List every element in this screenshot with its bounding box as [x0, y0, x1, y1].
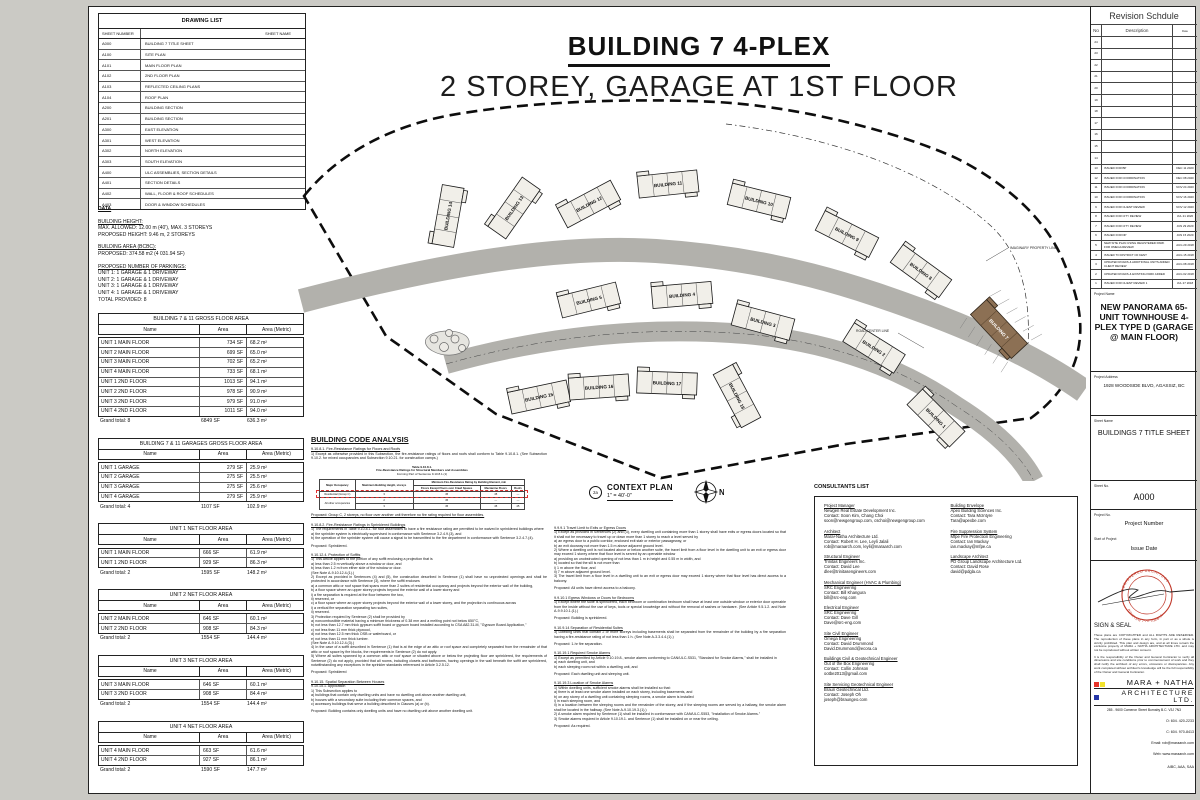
consultant-email: david@pdgla.ca [951, 569, 1078, 574]
sheet-name-cell: WEST ELEVATION [141, 138, 305, 143]
rev-no: 3 [1091, 260, 1102, 269]
rev-no: 17 [1091, 118, 1102, 129]
cell-metric: 60.1 m² [247, 616, 303, 622]
north-label: N [719, 488, 724, 497]
revision-row: 5NEW SITE PLAN USING REGISTERED PARK FOR… [1091, 241, 1197, 251]
proposed-statement: Proposed: 1-hr fire separation. [554, 642, 786, 646]
building-footprint: BUILDING 15 [507, 376, 572, 418]
col-name: Name [99, 667, 200, 676]
sheet-no-label: Sheet No. [1094, 484, 1194, 488]
sheet-name-cell: NORTH ELEVATION [141, 148, 305, 153]
rev-no: 16 [1091, 130, 1102, 141]
consultant-email: ootbe2013@gmail.com [824, 671, 951, 676]
rev-date [1173, 60, 1197, 71]
drawing-list-row: A400ULC ASSEMBLIES, SECTION DETAILS [99, 167, 305, 178]
rev-no: 19 [1091, 95, 1102, 106]
cell-metric: 84.4 m² [247, 691, 303, 697]
firm-phone-cell: C: 604. 970-8413 [1094, 730, 1194, 734]
rev-date: DEC 08 2020 [1173, 174, 1197, 183]
issue-date-section: Start of Project Issue Date [1091, 534, 1197, 561]
revision-row-empty: 15 [1091, 141, 1197, 153]
revision-row-empty: 18 [1091, 107, 1197, 119]
building-footprint: BUILDING 5 [556, 278, 621, 322]
rev-date [1173, 49, 1197, 60]
rev-date: NOV 16 2020 [1173, 193, 1197, 202]
area-table-title: UNIT 4 NET FLOOR AREA [99, 722, 303, 733]
revision-row: 8ISSUED FOR CITY REVIEWJUL 21 2020 [1091, 213, 1197, 223]
logo-red-square-icon [1094, 682, 1099, 687]
rev-description: ISSUED FOR COORDINATION [1102, 174, 1173, 183]
col-name: Name [99, 535, 200, 544]
consultant-email: joseph@braungeo.com [824, 697, 951, 702]
total-label: Grand total: 8 [98, 417, 198, 426]
copyright-paragraph: These plans are COPYRIGHTED and ALL RIGH… [1091, 634, 1197, 653]
project-number: Project Number [1094, 519, 1194, 531]
rev-date [1173, 95, 1197, 106]
data-line: UNIT 1: 1 GARAGE & 1 DRIVEWAY [98, 270, 304, 277]
consultant-entry: Landscape ArchitectPD Group Landscape Ar… [951, 554, 1078, 574]
sheet-name-cell: REFLECTED CEILING PLANS [141, 84, 305, 89]
rev-no: 11 [1091, 184, 1102, 193]
table-row: UNIT 2 GARAGE275 SF25.5 m² [99, 473, 303, 483]
rev-no: 2 [1091, 270, 1102, 279]
area-table: UNIT 3 NET FLOOR AREANameAreaArea (Metri… [98, 655, 304, 709]
consultant-entry: Structural EngineerTrinitas Engineers In… [824, 554, 951, 574]
logo-blue-square-icon [1094, 695, 1099, 700]
north-arrow-icon: N [694, 479, 724, 505]
area-tables: BUILDING 7 & 11 GROSS FLOOR AREANameArea… [98, 313, 304, 787]
cell-name: UNIT 3 MAIN FLOOR [99, 680, 200, 689]
proposed-statement: Proposed: Sprinklered. [311, 544, 547, 548]
building-footprint: BUILDING 16 [568, 370, 630, 404]
sheet-name-cell: WALL, FLOOR & ROOF SCHEDULES [141, 191, 305, 196]
rev-no: 1 [1091, 280, 1102, 289]
cell-area: 1011 SF [200, 407, 247, 416]
rev-description [1102, 141, 1173, 152]
consultant-entry: Buildings Civil & Geotechnical EngineerO… [824, 656, 951, 676]
cell-metric: 25.5 m² [247, 474, 303, 480]
consultant-entry: Site Servicing Geotechnical EngineerBrau… [824, 682, 951, 702]
col-name: Name [99, 325, 200, 334]
area-table-head: BUILDING 7 & 11 GROSS FLOOR AREANameArea… [98, 313, 304, 335]
area-table: UNIT 4 NET FLOOR AREANameAreaArea (Metri… [98, 721, 304, 775]
revision-row: 12ISSUED FOR COORDINATIONDEC 08 2020 [1091, 174, 1197, 184]
sheet-number-cell: A200 [99, 103, 141, 113]
context-plan-text: CONTEXT PLAN 1" = 40'-0" [607, 483, 673, 501]
architect-seal-area: REGISTERED ARCHITECT BRITISH COLUMBIA [1091, 561, 1197, 619]
logo-yellow-square-icon [1100, 682, 1105, 687]
cell-area: 275 SF [200, 473, 247, 482]
data-group-heading: BUILDING AREA (BCBC): [98, 244, 304, 251]
building-footprint: BUILDING 13 [485, 175, 544, 241]
rev-no: 10 [1091, 193, 1102, 202]
rev-no: 14 [1091, 153, 1102, 164]
total-area: 1107 SF [198, 502, 244, 511]
revision-row: 10ISSUED FOR COORDINATIONNOV 16 2020 [1091, 193, 1197, 203]
drawing-list-row: A000BUILDING 7 TITLE SHEET [99, 39, 305, 50]
sheet-number-cell: A301 [99, 135, 141, 145]
column-sheet-number: SHEET NUMBER [99, 29, 141, 38]
col-area: Area [200, 450, 247, 459]
area-table-columns: NameAreaArea (Metric) [99, 450, 303, 459]
cell-name: UNIT 3 MAIN FLOOR [99, 358, 200, 367]
cell-area: 979 SF [200, 397, 247, 406]
cell-name: UNIT 4 MAIN FLOOR [99, 368, 200, 377]
area-table-columns: NameAreaArea (Metric) [99, 733, 303, 742]
cell-name: UNIT 2 2ND FLOOR [99, 624, 200, 633]
rev-no: 15 [1091, 141, 1102, 152]
rev-col-no: No [1091, 25, 1102, 36]
data-line: UNIT 4: 1 GARAGE & 1 DRIVEWAY [98, 290, 304, 297]
rev-date: DEC 11 2020 [1173, 165, 1197, 174]
area-table-head: UNIT 1 NET FLOOR AREANameAreaArea (Metri… [98, 523, 304, 545]
revision-rows: 242322212019181716151413ISSUED FOR BPDEC… [1091, 37, 1197, 289]
firm-name-line1: MARA + NATHA [1106, 678, 1194, 687]
rev-description: ISSUED TO DISTRICT OF KENT [1102, 251, 1173, 260]
code-text-line: b) the operation of the sprinkler system… [311, 536, 547, 540]
project-address: 1928 WOODSIDE BLVD, AGASSIZ, BC [1094, 381, 1194, 412]
rev-no: 5 [1091, 241, 1102, 250]
data-line: PROPOSED: 374.58 m2 (4 031.94 SF) [98, 251, 304, 258]
fire-rating-table: Major OccupancyMaximum Building Height, … [319, 479, 525, 510]
cell-area: 663 SF [200, 746, 247, 755]
cell-area: 702 SF [200, 358, 247, 367]
sheet-number-section: Sheet No. A000 [1091, 481, 1197, 510]
col-area-metric: Area (Metric) [247, 537, 303, 543]
table-row: UNIT 2 MAIN FLOOR699 SF65.0 m² [99, 348, 303, 358]
rev-date: NOV 24 2020 [1173, 184, 1197, 193]
rev-description: ISSUED FOR COORDINATION [1102, 193, 1173, 202]
area-table-title: UNIT 3 NET FLOOR AREA [99, 656, 303, 667]
cell-name: UNIT 4 MAIN FLOOR [99, 746, 200, 755]
drawing-list-row: A303SOUTH ELEVATION [99, 157, 305, 168]
total-area: 1590 SF [198, 766, 244, 775]
sheet-name-cell: SITE PLAN [141, 52, 305, 57]
proposed-statement: Proposed: Sprinklered [311, 670, 547, 674]
cell-name: UNIT 4 2ND FLOOR [99, 756, 200, 765]
sheet-name-cell: BUILDING SECTION [141, 116, 305, 121]
rev-no: 9 [1091, 203, 1102, 212]
cell-name: UNIT 3 GARAGE [99, 483, 200, 492]
sheet-number-cell: A101 [99, 60, 141, 70]
table-row: UNIT 1 2ND FLOOR929 SF86.3 m² [99, 558, 303, 567]
title-block-panel: Revision Schdule No Description Date 242… [1090, 7, 1197, 793]
cell-metric: 25.9 m² [247, 465, 303, 471]
code-text-line: 3) Dwelling units that contain 2 or more… [554, 630, 786, 639]
drawing-list-row: A200BUILDING SECTION [99, 103, 305, 114]
cell-name: UNIT 2 MAIN FLOOR [99, 348, 200, 357]
area-table-head: UNIT 2 NET FLOOR AREANameAreaArea (Metri… [98, 589, 304, 611]
cell-area: 646 SF [200, 614, 247, 623]
fire-table-caption3: Forming Part of Sentence 9.10.8.1.(1) [319, 473, 525, 477]
sheet-name-section: Sheet Name BUILDINGS 7 TITLE SHEET [1091, 416, 1197, 481]
rev-description [1102, 107, 1173, 118]
data-line: UNIT 3: 1 GARAGE & 1 DRIVEWAY [98, 283, 304, 290]
context-plan-label: CONTEXT PLAN [607, 483, 673, 492]
consultant-email: bill@src-eng.com [824, 595, 951, 600]
table-row: UNIT 4 MAIN FLOOR663 SF61.6 m² [99, 746, 303, 756]
col-area-metric: Area (Metric) [247, 603, 303, 609]
revision-row: 2UPDATED ROADS & EXISTING PARK ADDEDAUG … [1091, 270, 1197, 280]
revision-row: 13ISSUED FOR BPDEC 11 2020 [1091, 165, 1197, 175]
cell-metric: 60.1 m² [247, 682, 303, 688]
cell-name: UNIT 2 MAIN FLOOR [99, 614, 200, 623]
cell-metric: 90.9 m² [247, 389, 303, 395]
table-row: UNIT 3 2ND FLOOR908 SF84.4 m² [99, 690, 303, 699]
revision-row: 3UPDATED ROADS & ADDITIONAL UNITS ADDED … [1091, 260, 1197, 270]
cell-name: UNIT 3 2ND FLOOR [99, 397, 200, 406]
revision-row-empty: 19 [1091, 95, 1197, 107]
code-text-line: ii) in a location between the sleeping r… [554, 703, 786, 712]
col-area-metric: Area (Metric) [247, 327, 303, 333]
project-name-label: Project Name [1094, 292, 1194, 296]
revision-row-empty: 16 [1091, 130, 1197, 142]
area-table: BUILDING 7 & 11 GARAGES GROSS FLOOR AREA… [98, 438, 304, 511]
rev-date [1173, 107, 1197, 118]
building-footprint: BUILDING 4 [651, 277, 713, 312]
table-row: UNIT 3 MAIN FLOOR702 SF65.2 m² [99, 358, 303, 368]
total-area: 1554 SF [198, 634, 244, 643]
cell-area: 699 SF [200, 348, 247, 357]
area-table-title: UNIT 2 NET FLOOR AREA [99, 590, 303, 601]
consultant-email: soon@newgengroup.com, cschoi@newgengroup… [824, 518, 951, 523]
building-footprint: BUILDING 18 [710, 362, 765, 429]
sheet-name-cell: EAST ELEVATION [141, 127, 305, 132]
building-code-analysis-col2: 9.9.9.1 Travel Limit to Exits or Egress … [554, 521, 786, 728]
rev-description: UPDATED ROADS & EXISTING PARK ADDED [1102, 270, 1173, 279]
rev-description: ISSUED FOR DP [1102, 232, 1173, 241]
code-text-line: 2) A smoke alarm required by Sentence (1… [554, 712, 786, 716]
sheet-number-cell: A402 [99, 189, 141, 199]
rev-description: ISSUED FOR CITY REVIEW [1102, 222, 1173, 231]
firm-associations: AIBC, AAA, SAA [1094, 765, 1194, 769]
firm-web: Web: www.maraarch.com [1094, 752, 1194, 756]
cell-name: UNIT 2 GARAGE [99, 473, 200, 482]
cell-name: UNIT 2 2ND FLOOR [99, 387, 200, 396]
building-footprint: BUILDING 17 [636, 367, 697, 399]
cell-area: 646 SF [200, 680, 247, 689]
rev-no: 21 [1091, 72, 1102, 83]
cell-name: UNIT 3 2ND FLOOR [99, 690, 200, 699]
building-footprint: BUILDING 11 [637, 166, 700, 202]
revision-row: 4ISSUED TO DISTRICT OF KENTAUG 15 2018 [1091, 251, 1197, 261]
total-label: Grand total: 2 [98, 766, 198, 775]
property-line-callout: IMAGINARY PROPERTY LINE [986, 246, 1058, 261]
cell-area: 908 SF [200, 624, 247, 633]
table-row: UNIT 3 2ND FLOOR979 SF91.0 m² [99, 397, 303, 407]
data-group-heading: BUILDING HEIGHT: [98, 219, 304, 226]
total-label: Grand total: 2 [98, 700, 198, 709]
rev-date [1173, 118, 1197, 129]
cell-area: 927 SF [200, 756, 247, 765]
sheet-name-cell: ROOF PLAN [141, 95, 305, 100]
rev-no: 4 [1091, 251, 1102, 260]
sheet-name-cell: 2ND FLOOR PLAN [141, 73, 305, 78]
cell-name: UNIT 1 2ND FLOOR [99, 558, 200, 567]
table-row: UNIT 2 2ND FLOOR978 SF90.9 m² [99, 387, 303, 397]
sheet-name-cell: SOUTH ELEVATION [141, 159, 305, 164]
revision-row: 1ISSUED FOR CLIENT REVIEW 1JUL 27 2018 [1091, 280, 1197, 290]
fire-rating-table-wrap: Table 9.10.8.1. Fire-Resistance Ratings … [319, 466, 525, 511]
building-label: BUILDING 17 [653, 380, 682, 386]
table-row: UNIT 4 MAIN FLOOR733 SF68.1 m² [99, 368, 303, 378]
rev-description [1102, 83, 1173, 94]
revision-row: 11ISSUED FOR COORDINATIONNOV 24 2020 [1091, 184, 1197, 194]
code-analysis-title: BUILDING CODE ANALYSIS [311, 438, 547, 442]
consultant-entry: Fire Suppression SystemMfpe Fire Protect… [951, 529, 1078, 549]
col-name: Name [99, 601, 200, 610]
table-row: UNIT 4 GARAGE279 SF25.9 m² [99, 493, 303, 502]
rev-description [1102, 95, 1173, 106]
area-table: UNIT 1 NET FLOOR AREANameAreaArea (Metri… [98, 523, 304, 577]
context-plan-caption: 2a CONTEXT PLAN 1" = 40'-0" N [589, 479, 779, 505]
rev-date: AUG 02 2018 [1173, 270, 1197, 279]
firm-email: Email: rob@maraarch.com [1094, 741, 1194, 745]
rev-date [1173, 37, 1197, 48]
consultants-left-column: Project ManagerNewgen Real Estate Develo… [824, 503, 951, 765]
building-footprint: BUILDING 10 [726, 179, 791, 223]
sheet-number-cell: A302 [99, 146, 141, 156]
rev-description: ISSUED FOR BP [1102, 165, 1173, 174]
drawing-list-row: A301WEST ELEVATION [99, 135, 305, 146]
revision-row-empty: 21 [1091, 72, 1197, 84]
cell-name: UNIT 1 MAIN FLOOR [99, 338, 200, 347]
col-area: Area [200, 535, 247, 544]
consultant-email: rob@maraarch.com, leyli@maraarch.com [824, 544, 951, 549]
table-row: UNIT 2 MAIN FLOOR646 SF60.1 m² [99, 614, 303, 624]
total-metric: 102.9 m² [244, 504, 304, 510]
data-section-body: BUILDING HEIGHT:MAX. ALLOWED: 12.00 m (4… [98, 219, 304, 304]
cell-area: 908 SF [200, 690, 247, 699]
proposed-statement: Proposed: Building contains only dwellin… [311, 709, 547, 713]
cell-metric: 25.9 m² [247, 494, 303, 500]
cell-metric: 61.9 m² [247, 550, 303, 556]
code-text-line: 5) Where all suites spanned by a common … [311, 654, 547, 667]
imaginary-property-line-label: IMAGINARY PROPERTY LINE [1010, 246, 1058, 250]
col-name: Name [99, 450, 200, 459]
area-table-columns: NameAreaArea (Metric) [99, 535, 303, 544]
responsibility-paragraph: It is the responsibility of the Owner an… [1091, 656, 1197, 675]
table-total-row: Grand total: 21590 SF147.7 m² [98, 766, 304, 775]
sheet-name-label: Sheet Name [1094, 419, 1194, 423]
col-area: Area [200, 733, 247, 742]
revision-schedule-header: No Description Date [1091, 24, 1197, 37]
rev-description [1102, 49, 1173, 60]
cell-area: 279 SF [200, 463, 247, 472]
cell-area: 734 SF [200, 338, 247, 347]
rev-description: ISSUED FOR CITY REVIEW [1102, 213, 1173, 222]
table-row: UNIT 3 MAIN FLOOR646 SF60.1 m² [99, 680, 303, 690]
code-text-line: 3) The travel limit from a floor level i… [554, 574, 786, 583]
data-line: PROPOSED HEIGHT: 9.46 m, 2 STOREYS [98, 232, 304, 239]
cell-name: UNIT 1 GARAGE [99, 463, 200, 472]
building-footprint: BUILDING 9 [813, 207, 880, 261]
building-code-analysis-col1: BUILDING CODE ANALYSIS 9.10.8.1. Fire-Re… [311, 438, 547, 714]
project-number-section: Project No. Project Number [1091, 510, 1197, 534]
area-table-body: UNIT 1 MAIN FLOOR734 SF68.2 m²UNIT 2 MAI… [98, 337, 304, 416]
total-metric: 147.7 m² [244, 767, 304, 773]
rev-no: 20 [1091, 83, 1102, 94]
rev-date: NOV 12 2020 [1173, 203, 1197, 212]
revision-row-empty: 22 [1091, 60, 1197, 72]
rev-description [1102, 130, 1173, 141]
table-row: UNIT 4 2ND FLOOR927 SF86.1 m² [99, 756, 303, 765]
rev-date: AUG 15 2018 [1173, 251, 1197, 260]
proposed-statement: Proposed: Group C, 2 storeys, no floor o… [311, 513, 547, 517]
cell-metric: 91.0 m² [247, 399, 303, 405]
revision-row-empty: 23 [1091, 49, 1197, 61]
table-row: UNIT 1 2ND FLOOR1013 SF94.1 m² [99, 378, 303, 388]
column-sheet-name: SHEET NAME [141, 31, 305, 36]
code-text-line: c) accessory buildings that serve a buil… [311, 702, 547, 706]
rev-no: 23 [1091, 49, 1102, 60]
col-area: Area [200, 667, 247, 676]
total-label: Grand total: 2 [98, 568, 198, 577]
drawing-list-table: DRAWING LIST SHEET NUMBER SHEET NAME A00… [98, 13, 306, 210]
table-row: UNIT 2 2ND FLOOR908 SF84.3 m² [99, 624, 303, 633]
revision-row: 6ISSUED FOR DPJUN 15 2020 [1091, 232, 1197, 242]
project-address-section: Project Address 1928 WOODSIDE BLVD, AGAS… [1091, 372, 1197, 416]
rev-date: JUL 27 2018 [1173, 280, 1197, 289]
total-label: Grand total: 4 [98, 502, 198, 511]
rev-date [1173, 153, 1197, 164]
total-area: 1554 SF [198, 700, 244, 709]
area-table: UNIT 2 NET FLOOR AREANameAreaArea (Metri… [98, 589, 304, 643]
area-table-head: UNIT 4 NET FLOOR AREANameAreaArea (Metri… [98, 721, 304, 743]
table-total-row: Grand total: 21554 SF144.4 m² [98, 634, 304, 643]
cell-area: 275 SF [200, 483, 247, 492]
sheet-number-cell: A103 [99, 82, 141, 92]
revision-row: 7ISSUED FOR CITY REVIEWJUN 29 2020 [1091, 222, 1197, 232]
proposed-statement: Proposed: Each dwelling unit and sleepin… [554, 672, 786, 676]
cell-name: UNIT 1 2ND FLOOR [99, 378, 200, 387]
rev-date: AUG 08 2018 [1173, 260, 1197, 269]
cell-metric: 68.1 m² [247, 369, 303, 375]
context-plan-ref-bubble: 2a [589, 486, 602, 499]
rev-no: 7 [1091, 222, 1102, 231]
rev-description [1102, 37, 1173, 48]
code-text-line: b) each sleeping room not within a dwell… [554, 665, 786, 669]
col-area-metric: Area (Metric) [247, 451, 303, 457]
area-table-body: UNIT 3 MAIN FLOOR646 SF60.1 m²UNIT 3 2ND… [98, 679, 304, 700]
consultant-entry: Site Civil EngineerOmega EngineeringCont… [824, 631, 951, 651]
sheet-number-cell: A201 [99, 114, 141, 124]
project-no-label: Project No. [1094, 513, 1194, 517]
firm-name-line2: ARCHITECTURE LTD. [1100, 690, 1194, 704]
sheet-number-cell: A400 [99, 167, 141, 177]
sheet-name-cell: MAIN FLOOR PLAN [141, 63, 305, 68]
area-table-title: UNIT 1 NET FLOOR AREA [99, 524, 303, 535]
code-text-line: 1) Except as provided in Sentences (2) a… [554, 530, 786, 539]
total-metric: 144.4 m² [244, 635, 304, 641]
col-name: Name [99, 733, 200, 742]
project-name: NEW PANORAMA 65-UNIT TOWNHOUSE 4-PLEX TY… [1094, 298, 1194, 368]
rev-description [1102, 60, 1173, 71]
firm-address: 285 - 9600 Cameron Street Burnaby B.C. V… [1094, 708, 1194, 712]
sheet-name-cell: BUILDING 7 TITLE SHEET [141, 41, 305, 46]
road-center-line-label: ROAD CENTER LINE [856, 329, 890, 333]
cell-metric: 86.1 m² [247, 757, 303, 763]
rev-description: NEW SITE PLAN USING REGISTERED PARK FOR … [1102, 241, 1173, 250]
area-table-body: UNIT 4 MAIN FLOOR663 SF61.6 m²UNIT 4 2ND… [98, 745, 304, 766]
data-section: DATA BUILDING HEIGHT:MAX. ALLOWED: 12.00… [98, 206, 304, 303]
cell-area: 279 SF [200, 493, 247, 502]
table-row: UNIT 3 GARAGE275 SF25.6 m² [99, 483, 303, 493]
area-table-body: UNIT 1 GARAGE279 SF25.9 m²UNIT 2 GARAGE2… [98, 462, 304, 502]
signature [1098, 589, 1194, 602]
sheet-number-cell: A104 [99, 92, 141, 102]
total-area: 6849 SF [198, 417, 244, 426]
